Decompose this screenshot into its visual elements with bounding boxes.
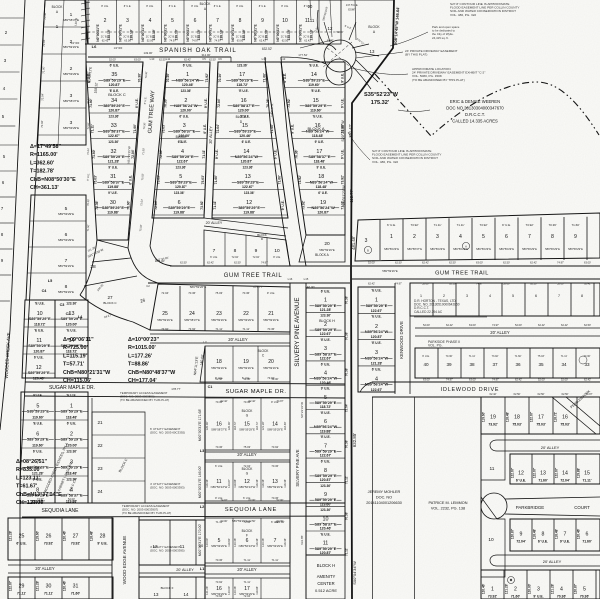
svg-text:481.48': 481.48' — [351, 236, 356, 250]
svg-text:589°59'29"E: 589°59'29"E — [263, 318, 279, 322]
svg-text:122.67': 122.67' — [8, 581, 12, 592]
svg-text:123.36': 123.36' — [243, 165, 254, 169]
svg-text:118.48': 118.48' — [261, 479, 265, 488]
svg-text:75.03': 75.03' — [243, 445, 251, 449]
svg-text:DOC NO 20130304000347670: DOC NO 20130304000347670 — [446, 106, 504, 111]
svg-text:63.00': 63.00' — [124, 39, 131, 43]
svg-text:N0°00'31"E: N0°00'31"E — [96, 23, 100, 41]
svg-text:71.11': 71.11' — [17, 591, 26, 595]
svg-text:62.42': 62.42' — [422, 261, 429, 265]
svg-text:(DOC. NO. 2003-0003395): (DOC. NO. 2003-0003395) — [150, 549, 185, 553]
svg-text:'E U.E.: 'E U.E. — [67, 328, 77, 332]
svg-text:9' U.E.: 9' U.E. — [281, 200, 285, 210]
svg-text:N0°00'31"E: N0°00'31"E — [276, 23, 280, 41]
svg-text:12: 12 — [518, 471, 524, 477]
svg-text:20141104001206630: 20141104001206630 — [366, 501, 402, 505]
svg-text:9' U.E.: 9' U.E. — [215, 149, 219, 159]
svg-text:28: 28 — [100, 534, 106, 540]
svg-text:6: 6 — [324, 419, 327, 425]
svg-text:BLOCK: BLOCK — [236, 115, 248, 119]
svg-text:9' U.E.: 9' U.E. — [502, 223, 511, 227]
svg-text:70.36': 70.36' — [215, 558, 223, 562]
svg-text:PATRICE M. LEMMON: PATRICE M. LEMMON — [429, 501, 468, 505]
svg-text:119.60': 119.60' — [310, 109, 322, 113]
svg-text:123.36': 123.36' — [66, 301, 77, 305]
svg-text:73.92': 73.92' — [479, 223, 488, 227]
svg-text:75.03': 75.03' — [512, 422, 521, 426]
svg-text:62.50': 62.50' — [562, 392, 569, 396]
svg-text:13: 13 — [540, 471, 546, 477]
svg-text:7: 7 — [324, 444, 327, 450]
svg-text:S89°58'37"E: S89°58'37"E — [308, 155, 330, 159]
svg-text:SPANISH OAK TRAIL: SPANISH OAK TRAIL — [159, 47, 237, 54]
svg-text:73.92': 73.92' — [215, 594, 223, 598]
svg-text:119.60': 119.60' — [35, 531, 39, 542]
svg-text:123.36': 123.36' — [320, 508, 331, 512]
svg-text:9: 9 — [520, 532, 523, 538]
svg-text:70.36': 70.36' — [345, 368, 349, 377]
svg-text:S89°58'37"E: S89°58'37"E — [233, 104, 255, 108]
svg-text:71.60': 71.60' — [133, 124, 137, 133]
svg-text:62.50': 62.50' — [449, 261, 456, 265]
svg-text:71.11': 71.11' — [271, 558, 279, 562]
svg-text:121.28': 121.28' — [8, 531, 12, 542]
svg-text:N0°00'31"E: N0°00'31"E — [119, 23, 123, 41]
svg-text:121.28': 121.28' — [371, 362, 383, 366]
svg-text:7: 7 — [558, 294, 560, 298]
svg-text:N89°56'24"W: N89°56'24"W — [174, 104, 198, 108]
svg-text:74.97': 74.97' — [492, 378, 499, 382]
svg-text:L=362.60': L=362.60' — [30, 160, 54, 166]
svg-text:120.87': 120.87' — [109, 83, 121, 87]
svg-text:(DOC. NO. 3003-0003393): (DOC. NO. 3003-0003393) — [150, 486, 185, 490]
svg-text:118.48': 118.48' — [312, 134, 324, 138]
svg-text:SUGAR MAPLE DR.: SUGAR MAPLE DR. — [49, 385, 95, 391]
svg-text:7: 7 — [564, 532, 567, 538]
svg-text:589°59'29"E: 589°59'29"E — [305, 104, 327, 108]
svg-text:72.04': 72.04' — [86, 122, 91, 130]
svg-text:70.36': 70.36' — [267, 327, 275, 331]
svg-text:70.36': 70.36' — [215, 445, 223, 449]
svg-text:C2: C2 — [66, 312, 71, 316]
svg-text:71.11': 71.11' — [243, 580, 251, 584]
svg-text:21: 21 — [97, 420, 103, 425]
svg-text:123.36': 123.36' — [109, 114, 120, 118]
svg-text:118.48': 118.48' — [532, 529, 536, 540]
svg-text:N89°56'24"W: N89°56'24"W — [211, 485, 228, 489]
svg-text:'E U.E.: 'E U.E. — [67, 393, 77, 397]
svg-text:N89°56'24"W: N89°56'24"W — [365, 330, 389, 334]
svg-text:S89°59'29"E: S89°59'29"E — [384, 247, 399, 251]
svg-text:'E U.E.: 'E U.E. — [372, 288, 382, 292]
svg-text:62.42': 62.42' — [490, 392, 497, 396]
svg-text:6' U.E.: 6' U.E. — [179, 114, 189, 118]
svg-text:5: 5 — [171, 18, 174, 24]
svg-text:13: 13 — [154, 592, 159, 597]
svg-text:4: 4 — [459, 234, 462, 240]
svg-text:6' U.E.: 6' U.E. — [372, 367, 382, 371]
svg-text:12: 12 — [36, 365, 42, 371]
svg-text:ChB=N80°21'31"W: ChB=N80°21'31"W — [63, 370, 111, 376]
svg-text:589°59'29"E: 589°59'29"E — [263, 366, 279, 370]
svg-text:71.60': 71.60' — [127, 200, 131, 209]
svg-text:BLOCK: BLOCK — [242, 409, 254, 413]
svg-text:120.00': 120.00' — [227, 586, 231, 595]
svg-text:71.60': 71.60' — [92, 149, 96, 158]
svg-text:S89°58'37"E: S89°58'37"E — [184, 318, 200, 322]
svg-text:29: 29 — [19, 584, 25, 590]
svg-text:589°59'29"E: 589°59'29"E — [211, 366, 227, 370]
svg-text:72.04': 72.04' — [560, 478, 569, 482]
svg-text:BLOCK: BLOCK — [242, 467, 254, 471]
svg-text:S89°58'37"E: S89°58'37"E — [211, 428, 227, 432]
svg-text:C6: C6 — [218, 57, 222, 61]
svg-text:191.42': 191.42' — [348, 124, 353, 138]
svg-text:62.50': 62.50' — [209, 58, 216, 62]
svg-text:N0°00'31"E: N0°00'31"E — [186, 23, 190, 41]
svg-text:589°59'29"E: 589°59'29"E — [238, 206, 260, 210]
svg-text:3: 3 — [183, 123, 186, 129]
svg-text:63.00': 63.00' — [249, 498, 256, 502]
svg-text:L11: L11 — [166, 57, 171, 61]
svg-text:112.77': 112.77' — [349, 189, 354, 202]
svg-text:BLOCK: BLOCK — [176, 135, 188, 139]
svg-text:Δ=10°00'23": Δ=10°00'23" — [128, 337, 159, 343]
svg-text:40: 40 — [423, 362, 429, 367]
svg-text:6: 6 — [586, 532, 589, 538]
svg-text:6' U.E.: 6' U.E. — [321, 289, 331, 293]
svg-text:N89°56'24"W: N89°56'24"W — [311, 206, 335, 210]
svg-text:119.60': 119.60' — [32, 416, 44, 420]
svg-text:26: 26 — [46, 534, 52, 540]
svg-text:70.36': 70.36' — [218, 73, 222, 82]
svg-text:62.42': 62.42' — [259, 39, 266, 43]
svg-text:73.92': 73.92' — [488, 594, 497, 598]
svg-text:4: 4 — [560, 587, 563, 593]
svg-text:71.60': 71.60' — [511, 594, 520, 598]
svg-text:73.92': 73.92' — [71, 541, 80, 545]
svg-text:121.28': 121.28' — [320, 308, 332, 312]
svg-text:9' U.E.: 9' U.E. — [533, 594, 543, 598]
svg-text:N0°00'31"E: N0°00'31"E — [231, 23, 235, 41]
svg-text:70.36': 70.36' — [43, 12, 47, 20]
svg-text:9: 9 — [255, 248, 258, 254]
svg-text:589°59'29"E: 589°59'29"E — [27, 438, 49, 442]
svg-text:L=115.19': L=115.19' — [63, 353, 87, 359]
svg-text:122.67': 122.67' — [320, 357, 332, 361]
svg-text:25: 25 — [19, 534, 25, 540]
svg-text:6: 6 — [535, 294, 537, 298]
svg-text:'E U.E.: 'E U.E. — [311, 89, 321, 93]
svg-text:'E U.E.: 'E U.E. — [372, 315, 382, 319]
svg-text:2C' B.L.: 2C' B.L. — [168, 36, 177, 39]
svg-text:ChB=N13°37'04"E: ChB=N13°37'04"E — [16, 492, 62, 498]
svg-text:118.48': 118.48' — [283, 421, 287, 430]
svg-text:70.36': 70.36' — [446, 355, 453, 358]
svg-text:74.97': 74.97' — [586, 392, 593, 396]
svg-text:10: 10 — [282, 18, 288, 24]
svg-text:GUM TREE TRAIL: GUM TREE TRAIL — [435, 271, 489, 277]
svg-text:DOC. NO: DOC. NO — [376, 496, 392, 500]
svg-text:N89°56'24"W: N89°56'24"W — [235, 155, 259, 159]
svg-text:38: 38 — [469, 362, 475, 367]
svg-text:'E U.E.: 'E U.E. — [321, 532, 331, 536]
svg-text:19: 19 — [490, 415, 496, 421]
svg-text:24,415 sq. ft.: 24,415 sq. ft. — [432, 36, 449, 40]
svg-text:S20°26'35"W: S20°26'35"W — [341, 120, 345, 142]
svg-text:C2: C2 — [146, 284, 150, 288]
svg-text:632.85': 632.85' — [300, 535, 304, 545]
svg-text:6: 6 — [505, 234, 508, 240]
svg-text:73.92': 73.92' — [340, 175, 344, 184]
svg-text:62.42': 62.42' — [102, 39, 109, 43]
svg-text:122.67': 122.67' — [108, 134, 120, 138]
svg-text:12: 12 — [328, 26, 333, 31]
svg-text:70.36': 70.36' — [95, 200, 99, 209]
svg-text:62.42': 62.42' — [184, 58, 191, 62]
svg-text:123.36': 123.36' — [176, 165, 187, 169]
svg-text:71.60': 71.60' — [71, 591, 80, 595]
svg-text:121.28': 121.28' — [261, 421, 265, 430]
svg-text:9' U.E.: 9' U.E. — [316, 165, 326, 169]
svg-text:118.48': 118.48' — [205, 479, 209, 488]
svg-text:37: 37 — [492, 362, 498, 367]
svg-text:N89°56'24"W: N89°56'24"W — [239, 544, 256, 548]
svg-text:7: 7 — [216, 18, 219, 24]
svg-text:9' U.E.: 9' U.E. — [340, 73, 344, 83]
svg-text:120.46': 120.46' — [62, 531, 66, 542]
svg-text:F: F — [246, 534, 248, 538]
svg-text:20' ALLEY: 20' ALLEY — [35, 566, 55, 571]
svg-text:S89°59'29"E: S89°59'29"E — [239, 428, 255, 432]
svg-text:120.87': 120.87' — [320, 551, 332, 555]
svg-text:71.11': 71.11' — [469, 355, 476, 358]
svg-text:632.52': 632.52' — [262, 47, 273, 51]
svg-text:8' U.E.: 8' U.E. — [281, 5, 289, 8]
svg-text:6' U.E.: 6' U.E. — [387, 223, 396, 227]
svg-text:14: 14 — [311, 72, 317, 78]
svg-text:11: 11 — [180, 544, 185, 549]
svg-text:120.87': 120.87' — [320, 478, 332, 482]
svg-text:74.97': 74.97' — [37, 497, 44, 501]
svg-text:10: 10 — [199, 543, 204, 548]
svg-text:S00°04'34"W: S00°04'34"W — [352, 561, 357, 585]
svg-text:11: 11 — [36, 338, 42, 344]
svg-text:CH=361.13': CH=361.13' — [30, 185, 59, 191]
svg-text:2: 2 — [413, 234, 416, 240]
svg-text:589°59'29"E: 589°59'29"E — [103, 104, 125, 108]
svg-text:120.00': 120.00' — [227, 421, 231, 430]
svg-text:1: 1 — [375, 298, 378, 304]
svg-text:S89°59'29"E: S89°59'29"E — [29, 317, 51, 321]
svg-text:1: 1 — [491, 587, 494, 593]
svg-text:62.50': 62.50' — [249, 519, 256, 523]
svg-text:18: 18 — [318, 174, 324, 180]
svg-text:52.00': 52.00' — [272, 377, 279, 381]
svg-text:73.92': 73.92' — [525, 223, 534, 227]
svg-text:75.03': 75.03' — [215, 291, 223, 295]
svg-text:L16: L16 — [288, 277, 293, 281]
svg-text:589°59'29"E: 589°59'29"E — [58, 290, 74, 294]
svg-text:62.50': 62.50' — [449, 282, 456, 286]
svg-text:589°59'29"E: 589°59'29"E — [238, 366, 254, 370]
svg-text:L13: L13 — [281, 57, 286, 61]
svg-text:71.11': 71.11' — [561, 355, 568, 358]
svg-text:6' U.E.: 6' U.E. — [16, 541, 26, 545]
svg-text:72.04': 72.04' — [159, 149, 163, 158]
svg-text:2C' B.L.: 2C' B.L. — [258, 36, 267, 39]
svg-text:5: 5 — [36, 404, 39, 410]
svg-text:72.04': 72.04' — [41, 93, 45, 101]
svg-text:72.04': 72.04' — [345, 404, 349, 413]
svg-text:589°59'29"E: 589°59'29"E — [522, 247, 537, 251]
svg-text:20' ALLEY: 20' ALLEY — [490, 330, 510, 335]
svg-text:6' U.E.: 6' U.E. — [242, 140, 252, 144]
svg-text:2: 2 — [375, 324, 378, 330]
svg-text:119.60': 119.60' — [308, 83, 320, 87]
svg-text:62.42': 62.42' — [584, 378, 591, 382]
svg-text:N00°00'31"E 171.68': N00°00'31"E 171.68' — [198, 409, 202, 442]
svg-text:39: 39 — [446, 362, 452, 367]
svg-text:BLOCK C: BLOCK C — [108, 92, 126, 97]
svg-text:63.00': 63.00' — [237, 39, 244, 43]
svg-text:8' U.E.: 8' U.E. — [214, 5, 222, 8]
svg-text:S89°58'37"E: S89°58'37"E — [102, 180, 124, 184]
svg-text:N0°00'31"E: N0°00'31"E — [209, 23, 213, 41]
svg-text:30' ALLEY: 30' ALLEY — [209, 126, 214, 144]
svg-text:1: 1 — [186, 72, 189, 78]
svg-text:63.00': 63.00' — [469, 378, 476, 382]
svg-text:9' U.E.: 9' U.E. — [108, 165, 118, 169]
svg-text:70.36': 70.36' — [164, 98, 168, 107]
svg-text:20' ALLEY: 20' ALLEY — [237, 452, 257, 457]
svg-text:121.28': 121.28' — [108, 160, 120, 164]
svg-text:(TO BE ABANDONED BY THIS PLAT): (TO BE ABANDONED BY THIS PLAT) — [120, 398, 169, 402]
svg-text:123.36': 123.36' — [174, 191, 185, 195]
svg-text:S89°59'29"E: S89°59'29"E — [170, 180, 192, 184]
svg-text:62.50': 62.50' — [514, 392, 521, 396]
svg-text:16: 16 — [562, 415, 568, 421]
svg-text:62.42': 62.42' — [515, 378, 522, 382]
svg-text:S89°59'29"E: S89°59'29"E — [211, 544, 227, 548]
svg-text:S89°59'29"E: S89°59'29"E — [499, 247, 514, 251]
svg-text:'E U.E.: 'E U.E. — [34, 328, 44, 332]
svg-text:74.97': 74.97' — [446, 378, 453, 382]
svg-text:62.50': 62.50' — [282, 39, 289, 43]
svg-text:120.00': 120.00' — [205, 538, 209, 547]
svg-text:6: 6 — [194, 18, 197, 24]
svg-text:71.11': 71.11' — [243, 558, 251, 562]
svg-text:70.36': 70.36' — [242, 291, 250, 295]
svg-text:119.88': 119.88' — [243, 211, 255, 215]
svg-text:S89°59'29"E: S89°59'29"E — [58, 238, 74, 242]
svg-text:72.04': 72.04' — [154, 200, 158, 209]
svg-text:120.46': 120.46' — [33, 377, 45, 381]
svg-text:3: 3 — [324, 346, 327, 352]
svg-text:31: 31 — [73, 584, 79, 590]
svg-text:S0°23'33"W: S0°23'33"W — [300, 402, 304, 418]
svg-text:70.36': 70.36' — [345, 332, 349, 341]
svg-text:T=57.71': T=57.71' — [63, 362, 84, 368]
svg-text:120.00': 120.00' — [180, 109, 192, 113]
svg-text:(DOC. NO. 2003-60C3392): (DOC. NO. 2003-60C3392) — [150, 431, 185, 435]
svg-text:(TO BE ABANDONED BY THIS PLAT): (TO BE ABANDONED BY THIS PLAT) — [122, 511, 171, 515]
svg-text:2C' B.L.: 2C' B.L. — [303, 36, 312, 39]
svg-text:70.36': 70.36' — [557, 594, 566, 598]
svg-text:8: 8 — [324, 468, 327, 474]
svg-text:N0°00'31"E: N0°00'31"E — [141, 23, 145, 41]
svg-text:120.00': 120.00' — [66, 323, 78, 327]
svg-text:73.92': 73.92' — [492, 355, 499, 358]
svg-text:121.28': 121.28' — [504, 584, 508, 595]
svg-text:118.48': 118.48' — [316, 185, 328, 189]
svg-text:2C' B.L.: 2C' B.L. — [101, 36, 110, 39]
svg-text:73.92': 73.92' — [40, 120, 44, 128]
svg-text:120.87': 120.87' — [317, 211, 329, 215]
svg-text:S89°59'29"E: S89°59'29"E — [172, 155, 194, 159]
svg-text:71.60': 71.60' — [141, 147, 146, 155]
svg-text:ChB=N80°48'37"W: ChB=N80°48'37"W — [128, 370, 176, 376]
svg-text:589°59'26"E: 589°59'26"E — [382, 269, 398, 273]
svg-text:6' U.E.: 6' U.E. — [321, 362, 331, 366]
svg-text:6' U.E.: 6' U.E. — [318, 191, 328, 195]
svg-text:62.42': 62.42' — [207, 261, 214, 265]
svg-text:BLOCK H: BLOCK H — [317, 563, 335, 568]
svg-text:73.92': 73.92' — [302, 200, 306, 209]
svg-text:122.67': 122.67' — [510, 468, 514, 479]
svg-text:VOL. 486, PG. 322: VOL. 486, PG. 322 — [450, 13, 476, 17]
svg-text:118.48': 118.48' — [283, 538, 287, 547]
svg-text:S89°59'29"E: S89°59'29"E — [28, 344, 50, 348]
svg-text:33: 33 — [584, 362, 590, 367]
svg-text:73.92': 73.92' — [205, 73, 209, 82]
svg-text:73.92': 73.92' — [410, 223, 419, 227]
svg-text:71.11': 71.11' — [90, 124, 94, 133]
svg-text:33: 33 — [111, 123, 117, 129]
svg-text:S89°59'29"E: S89°59'29"E — [63, 72, 79, 76]
svg-text:S89°59'29"E: S89°59'29"E — [27, 410, 49, 414]
svg-text:6' U.E.: 6' U.E. — [210, 255, 218, 259]
svg-text:123.36': 123.36' — [237, 63, 248, 67]
svg-text:25: 25 — [162, 311, 168, 317]
svg-text:8' U.E.: 8' U.E. — [236, 5, 244, 8]
svg-text:71.11': 71.11' — [457, 223, 465, 227]
svg-text:8: 8 — [581, 294, 583, 298]
svg-text:34: 34 — [561, 362, 567, 367]
svg-text:L3: L3 — [200, 449, 204, 453]
svg-text:1: 1 — [324, 298, 327, 304]
svg-text:'E U.E.: 'E U.E. — [321, 435, 331, 439]
svg-text:S00°01'23"W: S00°01'23"W — [342, 185, 346, 207]
svg-text:72.04': 72.04' — [42, 39, 46, 47]
svg-text:72.04': 72.04' — [131, 149, 135, 158]
svg-text:N00°00'31"E 146.00': N00°00'31"E 146.00' — [198, 466, 202, 499]
svg-text:123.36': 123.36' — [181, 89, 192, 93]
svg-text:121.28': 121.28' — [550, 584, 554, 595]
svg-text:149.00': 149.00' — [143, 51, 153, 55]
svg-text:6' U.E.: 6' U.E. — [110, 63, 120, 67]
svg-text:BLOCK F: BLOCK F — [161, 586, 174, 590]
svg-text:6' U.E.: 6' U.E. — [283, 73, 287, 83]
svg-text:9' U.E.: 9' U.E. — [321, 387, 331, 391]
svg-text:S89°58'37"E: S89°58'37"E — [103, 129, 125, 133]
svg-text:L6: L6 — [92, 44, 97, 49]
svg-text:52.00': 52.00' — [337, 30, 344, 34]
svg-text:2: 2 — [104, 18, 107, 24]
svg-text:118.72': 118.72' — [237, 83, 249, 87]
svg-text:(TO BE ABANDONED BY THIS PLAT): (TO BE ABANDONED BY THIS PLAT) — [412, 78, 465, 82]
svg-text:6' U.E.: 6' U.E. — [538, 539, 548, 543]
